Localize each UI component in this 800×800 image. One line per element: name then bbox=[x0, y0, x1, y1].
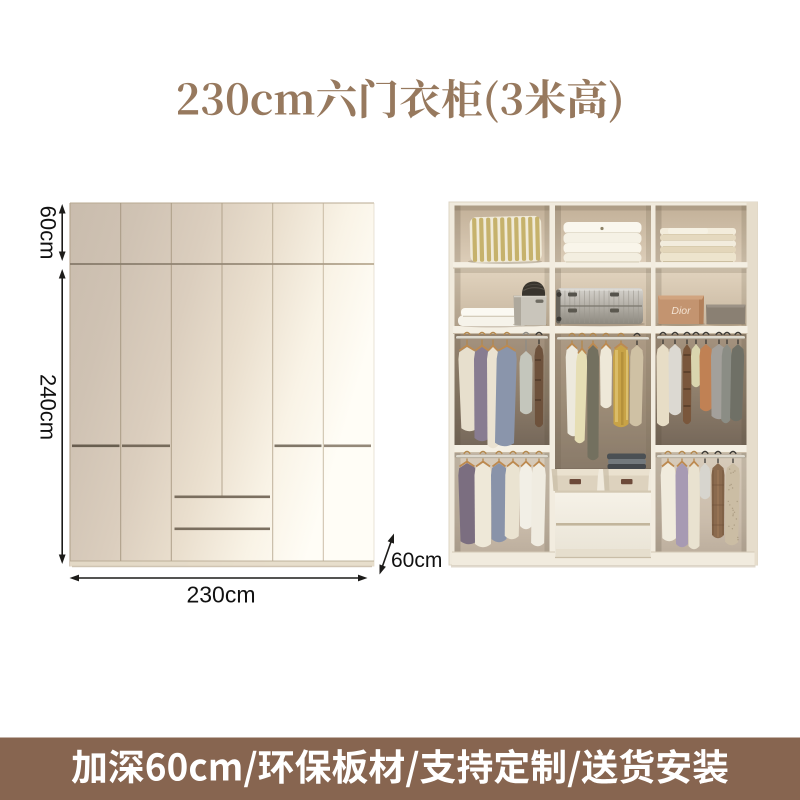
svg-text:240cm: 240cm bbox=[36, 374, 61, 440]
svg-text:60cm: 60cm bbox=[36, 206, 61, 260]
svg-text:Dior: Dior bbox=[671, 305, 691, 317]
svg-text:60cm: 60cm bbox=[391, 549, 442, 572]
svg-text:230cm: 230cm bbox=[186, 582, 255, 608]
